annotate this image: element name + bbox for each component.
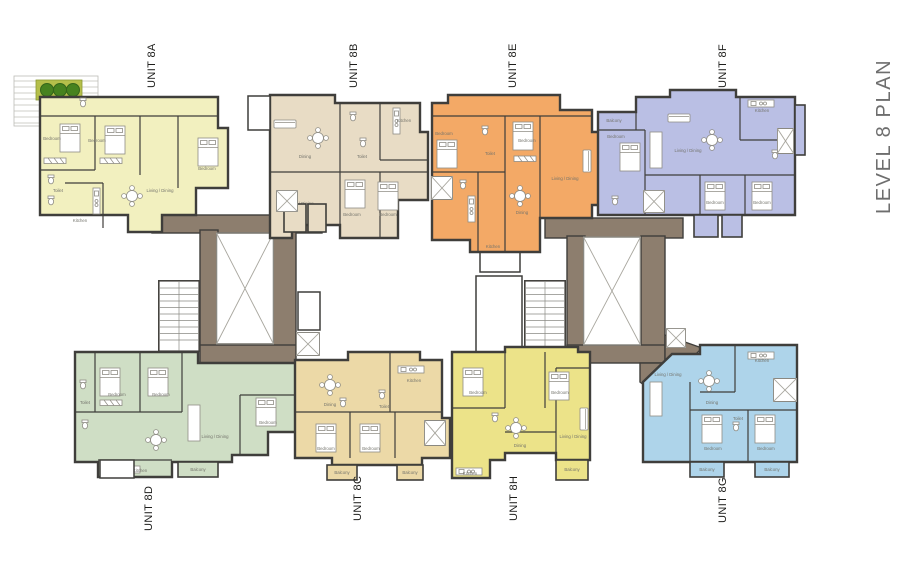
bed-icon [705, 182, 725, 210]
tv-unit [650, 382, 662, 416]
room-label: Dining [514, 443, 527, 448]
room-label: Kitchen [73, 218, 88, 223]
room-label: Balcony [190, 467, 206, 472]
room-label: Kitchen [755, 358, 770, 363]
room-label: Bedroom [379, 212, 397, 217]
toilet-icon [612, 196, 618, 205]
unit-8e-label: UNIT 8E [507, 43, 519, 88]
floor-plan-svg: Bedroom Bedroom Bedroom Living / Dining … [0, 0, 900, 571]
bed-icon [345, 180, 365, 208]
room-label: Bedroom [362, 446, 380, 451]
unit-8f-label: UNIT 8F [717, 44, 729, 88]
core-wall [200, 230, 218, 363]
room-label: Living / Dining [560, 434, 588, 439]
core-wall [272, 230, 296, 350]
room-label: Toilet [733, 416, 744, 421]
sofa-icon [580, 408, 588, 430]
core-left [152, 215, 322, 363]
bed-icon [620, 143, 640, 171]
unit-8c: Dining Kitchen Bedroom Bedroom Toilet [295, 352, 450, 465]
unit-8d: Bedroom Bedroom Bedroom Living / Dining … [75, 352, 300, 477]
room-label: Bedroom [469, 390, 487, 395]
duct-shaft [773, 378, 797, 402]
toilet-icon [48, 196, 54, 205]
bed-icon [105, 126, 125, 154]
kitchen-island [650, 132, 662, 168]
room-label: Kitchen [133, 468, 148, 473]
room-label: Toilet [53, 188, 64, 193]
toilet-icon [80, 98, 86, 107]
wardrobe-icon [100, 400, 122, 406]
room-label: Kitchen [486, 244, 501, 249]
room-label: Bedroom [343, 212, 361, 217]
room-label: Bedroom [704, 446, 722, 451]
toilet-icon [460, 180, 466, 189]
room-label: Balcony [764, 467, 780, 472]
room-label: Living / Dining [655, 372, 683, 377]
room-label: Toilet [485, 151, 496, 156]
tree-icon [54, 84, 67, 97]
wardrobe-icon [514, 156, 536, 162]
room-label: Bedroom [108, 392, 126, 397]
toilet-icon [482, 126, 488, 135]
toilet-icon [492, 413, 498, 422]
room-label: Living / Dining [202, 434, 230, 439]
room-label: Living / Dining [675, 148, 703, 153]
room-label: Dining [516, 210, 529, 215]
tv-unit [188, 405, 200, 441]
bed-icon [549, 372, 569, 400]
room-label: Bedroom [435, 131, 453, 136]
room-label: Toilet [357, 154, 368, 159]
room-label: Toilet [379, 404, 390, 409]
elevator-shaft [584, 237, 641, 345]
unit-8a: Bedroom Bedroom Bedroom Living / Dining … [40, 97, 228, 232]
refuge-area-box [476, 276, 522, 352]
room-label: Kitchen [397, 118, 412, 123]
tree-icon [41, 84, 54, 97]
room-label: Kitchen [463, 471, 478, 476]
room-label: Balcony [564, 467, 580, 472]
room-label: Balcony [334, 470, 350, 475]
unit-8d-label: UNIT 8D [143, 486, 155, 531]
bed-icon [198, 138, 218, 166]
kitchen-counter-icon [468, 196, 475, 222]
duct-shaft [431, 176, 453, 200]
room-label: Balcony [402, 470, 418, 475]
room-label: Dining [324, 402, 337, 407]
duct-shaft [777, 128, 794, 153]
unit-8b-label: UNIT 8B [348, 43, 360, 88]
room-label: Dining [299, 154, 312, 159]
toilet-icon [340, 398, 346, 407]
sofa-icon [274, 120, 296, 128]
room-label: Bedroom [753, 200, 771, 205]
kitchen-counter-icon [93, 188, 100, 214]
toilet-icon [379, 390, 385, 399]
toilet-icon [360, 138, 366, 147]
room-label: Balcony [606, 118, 622, 123]
lift-shaft [296, 332, 320, 356]
duct-shaft [643, 190, 665, 213]
bed-icon [513, 122, 533, 150]
utility-box [308, 204, 326, 232]
core-wall [567, 236, 585, 363]
room-label: Living / Dining [552, 176, 580, 181]
toilet-icon [733, 422, 739, 431]
bed-icon [702, 415, 722, 443]
unit-8g-label: UNIT 8G [717, 477, 729, 523]
unit-8a-label: UNIT 8A [146, 43, 158, 88]
plan-title: LEVEL 8 PLAN [873, 59, 895, 214]
core-wall [641, 236, 665, 363]
bed-icon [378, 182, 398, 210]
unit-8g-area [643, 345, 797, 462]
elevator-shaft [217, 233, 274, 344]
room-label: Balcony [699, 467, 715, 472]
staircase [159, 281, 199, 351]
room-label: Bedroom [43, 136, 61, 141]
kitchen-counter-icon [748, 100, 774, 107]
core-corridor [545, 218, 683, 238]
unit-8f: Living / Dining Kitchen Bedroom Bedroom … [598, 90, 795, 215]
room-label: Bedroom [518, 138, 536, 143]
wardrobe-icon [100, 158, 122, 164]
staircase [525, 281, 565, 351]
room-label: Bedroom [607, 134, 625, 139]
utility-box [722, 215, 742, 237]
bed-icon [437, 140, 457, 168]
room-label: Kitchen [407, 378, 422, 383]
toilet-icon [80, 380, 86, 389]
room-label: Dining [706, 400, 719, 405]
room-label: Living / Dining [147, 188, 175, 193]
balcony-box [100, 460, 134, 478]
unit-8g: Living / Dining Dining Bedroom Bedroom K… [643, 345, 797, 462]
unit-8h-label: UNIT 8H [508, 476, 520, 521]
room-label: Toilet [80, 400, 91, 405]
room-label: Bedroom [88, 138, 106, 143]
room-label: Bedroom [757, 446, 775, 451]
floor-plan-page: Bedroom Bedroom Bedroom Living / Dining … [0, 0, 900, 571]
room-label: Bedroom [152, 392, 170, 397]
room-label: Bedroom [706, 200, 724, 205]
core-corridor [200, 345, 296, 363]
lobby-box [248, 96, 270, 130]
lift-shaft [276, 190, 298, 212]
lobby-box [298, 292, 320, 330]
bed-icon [755, 415, 775, 443]
toilet-icon [48, 175, 54, 184]
sofa-icon [583, 150, 591, 172]
toilet-icon [82, 420, 88, 429]
room-label: Kitchen [755, 108, 770, 113]
room-label: Bedroom [551, 390, 569, 395]
balcony-strip [795, 105, 805, 155]
unit-8c-label: UNIT 8C [352, 476, 364, 521]
room-label: Bedroom [198, 166, 216, 171]
wardrobe-icon [44, 158, 66, 164]
bed-icon [60, 124, 80, 152]
unit-8h-area [452, 347, 590, 478]
sofa-icon [668, 114, 690, 122]
room-label: Bedroom [317, 446, 335, 451]
toilet-icon [350, 112, 356, 121]
utility-box [694, 215, 718, 237]
room-label: Bedroom [259, 420, 277, 425]
kitchen-counter-icon [398, 366, 424, 373]
duct-shaft [424, 420, 446, 445]
tree-icon [67, 84, 80, 97]
unit-8h: Bedroom Bedroom Living / Dining Dining K… [452, 347, 590, 478]
bed-icon [752, 182, 772, 210]
lift-shaft [666, 328, 686, 348]
